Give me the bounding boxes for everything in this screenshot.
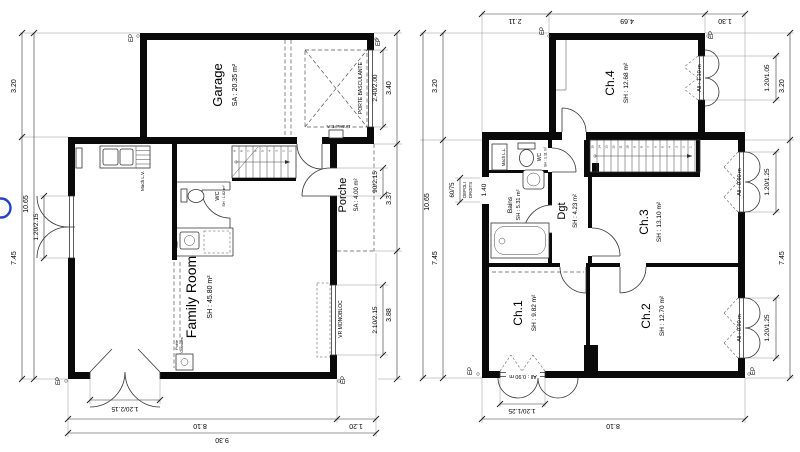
dim-left-sill: 1.40 xyxy=(481,183,488,196)
stair-number: 7 xyxy=(647,146,651,148)
stair-number: 3 xyxy=(675,146,679,148)
dim-bottom-seg-main: 8.10 xyxy=(193,422,207,429)
vr-monobloc-box xyxy=(317,283,330,357)
linteau-label: Linteau B.A. xyxy=(326,124,351,129)
stair-number: 1 xyxy=(689,146,693,148)
dim-right-seg-top: 3.20 xyxy=(779,79,786,93)
dim-top-seg-left: 2.11 xyxy=(508,17,521,24)
bains-room-label: Bains xyxy=(507,196,514,213)
stair-number: 4 xyxy=(668,146,672,148)
dim-bottom-total: 8.10 xyxy=(606,422,620,429)
dim-bottom-total: 9.30 xyxy=(215,436,229,443)
mach-lv-label: Mach L.V. xyxy=(140,171,145,191)
family-room-label: Family Room xyxy=(183,256,199,338)
ch1-room-label: Ch.1 xyxy=(511,300,525,326)
stair-number: 14 xyxy=(598,145,602,149)
bains-room-area: SH : 5.31 m² xyxy=(516,189,522,220)
ch4-closet xyxy=(556,40,566,90)
stair-number: 2 xyxy=(282,150,286,152)
stair-number: 11 xyxy=(619,145,623,148)
dim-left-door: 1.20/2.15 xyxy=(33,213,40,240)
wc2-room-label: WC xyxy=(537,152,543,161)
garage-room-label: Garage xyxy=(210,63,225,106)
porche-room-label: Porche xyxy=(337,178,349,213)
ep-marker: EP xyxy=(468,367,474,375)
dim-left-seg-top: 3.20 xyxy=(11,79,18,93)
family-room-window xyxy=(330,285,337,355)
stair-number: 10 xyxy=(626,145,630,149)
dim-left-seg-top: 3.20 xyxy=(432,79,439,93)
plan2-stairs xyxy=(590,140,700,172)
dim-bottom-window: 1.20/1.25 xyxy=(508,407,535,414)
dim-bottom-door: 1.20/2.15 xyxy=(111,405,138,412)
garage-house-door xyxy=(297,144,322,169)
hand-basin xyxy=(180,232,199,249)
ep-marker: EP xyxy=(709,31,715,39)
ch3-door xyxy=(592,228,620,256)
ep-marker: EP xyxy=(540,27,546,35)
dim-right-seg-top: 3.40 xyxy=(386,81,393,95)
ep-marker: EP xyxy=(56,377,62,385)
stair-number: 5 xyxy=(661,146,665,148)
ch2-door xyxy=(620,267,646,293)
poele-label-2: Granulés xyxy=(180,337,184,353)
plan2-upper-floor: 2.11 4.69 1.30 Ch.4 SH : 12.68 m² All : … xyxy=(420,11,794,429)
dim-left-total: 10.65 xyxy=(424,193,431,211)
depoli-label-1: DEPOLI xyxy=(462,182,467,198)
ep-marker: EP xyxy=(376,38,382,46)
plan1-ground-floor: Garage SA : 20.35 m² PORTE BASCULANTE 2.… xyxy=(11,30,402,443)
kitchen-sink-2 xyxy=(120,149,133,165)
dim-ch4-window: 1.20/1.05 xyxy=(764,64,771,91)
mach-ll-label: Mach L.L. xyxy=(501,148,506,166)
garage-room-area: SA : 20.35 m² xyxy=(232,63,239,106)
dim-right-seg-bottom: 3.88 xyxy=(386,308,393,322)
stair-number: 9 xyxy=(233,150,237,152)
plan2-texts: 2.11 4.69 1.30 Ch.4 SH : 12.68 m² All : … xyxy=(424,17,786,429)
family-room-area: SH : 45.80 m² xyxy=(207,275,214,319)
stair-number: 9 xyxy=(633,146,637,148)
dim-left-seg-bottom: 7.45 xyxy=(432,251,439,265)
porch-entry-door xyxy=(302,168,330,196)
plan1-fixtures xyxy=(76,130,343,370)
ep-marker: EP xyxy=(129,34,135,42)
porche-room-area: SA : 4.00 m² xyxy=(354,178,360,211)
dgt-room-label: Dgt xyxy=(556,202,568,219)
stair-number: 2 xyxy=(682,146,686,148)
ch4-room-area: SH : 12.68 m² xyxy=(623,62,630,103)
bathtub xyxy=(491,223,549,258)
dim-porch-door: 90/2.15 xyxy=(372,171,379,193)
dim-right-seg-bottom: 7.45 xyxy=(779,251,786,265)
stair-number: 6 xyxy=(654,146,658,148)
ch3-room-area: SH : 13.10 m² xyxy=(656,201,663,242)
dim-left-window: 60/75 xyxy=(450,182,456,198)
ch3-room-label: Ch.3 xyxy=(637,209,651,235)
stair-number: 3 xyxy=(275,150,279,152)
ch4-door xyxy=(562,108,586,132)
ch2-room-label: Ch.2 xyxy=(639,303,653,329)
toilet-tank xyxy=(181,189,187,202)
lav-label: Lav. xyxy=(175,241,179,248)
ch4-sill-label: All : 1.10 m xyxy=(697,64,703,92)
toilet2-tank xyxy=(518,143,535,149)
porch-door-opening xyxy=(330,168,337,196)
wc-room-area: SH : 1.62 m² xyxy=(222,185,226,207)
dim-ch3-window: 1.20/1.25 xyxy=(764,168,771,195)
dim-right-seg-mid: 3.37 xyxy=(386,191,393,205)
stair-number: 12 xyxy=(612,145,616,149)
floor-plan-page: Garage SA : 20.35 m² PORTE BASCULANTE 2.… xyxy=(0,0,800,452)
ch3-sill-label: All : 0.90 m xyxy=(737,168,743,196)
shelf xyxy=(76,148,82,168)
wc2-room-area: SH : 1.11 m² xyxy=(544,146,548,167)
ch1-door xyxy=(560,267,586,293)
ch4-room-label: Ch.4 xyxy=(603,70,617,96)
stair-number: 1 xyxy=(289,150,293,152)
bottom-double-door xyxy=(90,349,160,407)
stair-number: 13 xyxy=(605,145,609,149)
ch2-sill-label: All : 0.90 m xyxy=(737,314,743,342)
stair-number: 8 xyxy=(240,150,244,152)
water-heater xyxy=(329,130,343,138)
stair-number: 15 xyxy=(591,145,595,149)
toilet2-bowl xyxy=(520,150,534,167)
dim-ch2-window: 1.20/1.25 xyxy=(764,314,771,341)
dim-bottom-seg-porch: 1.20 xyxy=(349,422,363,429)
ch1-room-area: SH : 9.82 m² xyxy=(531,294,538,331)
stair-number: 5 xyxy=(261,150,265,152)
porte-basculante-label: PORTE BASCULANTE xyxy=(358,61,364,114)
ch2-room-area: SH : 12.70 m² xyxy=(659,295,666,336)
stair-number: 4 xyxy=(268,150,272,152)
vr-monobloc-label: VR MONOBLOC xyxy=(338,300,344,338)
watermark-logo xyxy=(0,199,11,218)
ep-marker: EP xyxy=(751,367,757,375)
dim-top-seg-mid: 4.69 xyxy=(620,17,634,24)
floor-plan-drawing: Garage SA : 20.35 m² PORTE BASCULANTE 2.… xyxy=(0,0,800,452)
stair-number: 7 xyxy=(247,150,251,152)
kitchen-sink xyxy=(103,149,118,165)
pellet-stove xyxy=(176,354,193,370)
dim-garage-door: 2.40/2.00 xyxy=(372,74,379,101)
dim-left-total: 10.65 xyxy=(23,195,30,213)
dgt-room-area: SH : 4.23 m² xyxy=(573,194,579,228)
depoli-label-2: DROITS xyxy=(468,182,473,198)
dim-top-seg-right: 1.30 xyxy=(718,17,732,24)
ch1-sill-label: All : 0.90 m xyxy=(509,373,537,379)
wc2-door xyxy=(552,148,576,172)
dishwasher xyxy=(136,146,150,168)
dim-right-window: 2.10/2.15 xyxy=(372,306,379,333)
ep-marker: EP xyxy=(341,376,347,384)
left-french-door xyxy=(68,196,75,258)
stair-number: 8 xyxy=(640,146,644,148)
poele-label-1: Poêle xyxy=(175,340,179,350)
wc-room-label: WC xyxy=(215,191,221,200)
dim-left-seg-bottom: 7.45 xyxy=(11,251,18,265)
toilet-bowl xyxy=(188,190,204,203)
